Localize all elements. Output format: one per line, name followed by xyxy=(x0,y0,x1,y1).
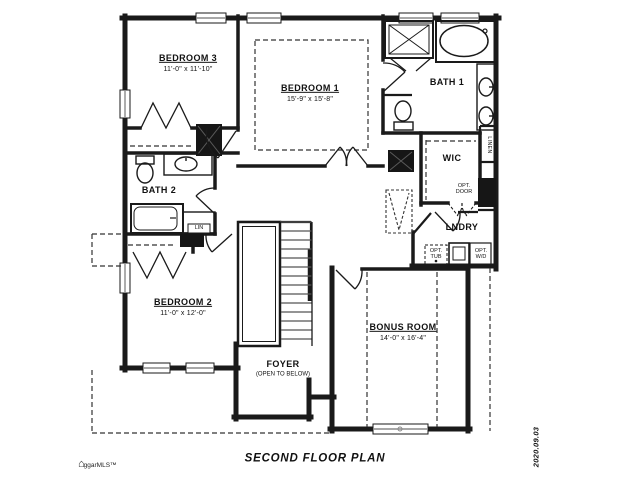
block-hatch xyxy=(198,126,412,170)
bath2-label: BATH 2 xyxy=(142,185,176,195)
lndry-label: LNDRY xyxy=(446,222,479,232)
bedroom2-dims: 11'-0" x 12'-0" xyxy=(160,310,206,318)
plan-title: SECOND FLOOR PLAN xyxy=(245,452,386,465)
date-stamp: 2020.09.03 xyxy=(533,427,542,468)
bath1-tub xyxy=(436,21,495,62)
foyer-note: (OPEN TO BELOW) xyxy=(256,372,310,379)
bonus-room-label: BONUS ROOM xyxy=(370,322,437,332)
bedroom1-label: BEDROOM 1 xyxy=(281,83,339,93)
foyer-label: FOYER xyxy=(266,359,299,369)
opt-door-label: OPT. DOOR xyxy=(456,183,473,195)
bath1-vanity xyxy=(477,64,496,130)
lin-label: LIN xyxy=(195,225,204,231)
bedroom3-label: BEDROOM 3 xyxy=(159,53,217,63)
opt-wd-label: OPT. W/D xyxy=(475,248,487,260)
bedroom2-label: BEDROOM 2 xyxy=(154,297,212,307)
bath1-label: BATH 1 xyxy=(430,77,464,87)
floor-plan: BEDROOM 3 11'-0" x 11'-10" BEDROOM 1 15'… xyxy=(0,0,640,480)
mls-watermark: ⌂ ggarMLS™ xyxy=(78,459,117,469)
linen-label: LINEN xyxy=(485,136,491,153)
opt-tub-label: OPT. TUB xyxy=(430,248,442,260)
wic-label: WIC xyxy=(443,153,462,163)
stairs xyxy=(238,222,312,346)
bath2-toilet xyxy=(136,156,154,183)
opt-door-swing xyxy=(448,203,476,216)
floor-plan-linework xyxy=(0,0,640,480)
bedroom3-dims: 11'-0" x 11'-10" xyxy=(163,66,212,74)
attic-access xyxy=(386,190,412,233)
bath2-sink xyxy=(164,154,212,175)
mls-watermark-text: ggarMLS™ xyxy=(84,462,117,469)
bedroom1-dims: 15'-9" x 15'-8" xyxy=(287,96,333,104)
bath2-tub xyxy=(131,204,183,233)
bath1-toilet xyxy=(394,101,413,130)
bonus-room-dims: 14'-0" x 16'-4" xyxy=(380,335,426,343)
